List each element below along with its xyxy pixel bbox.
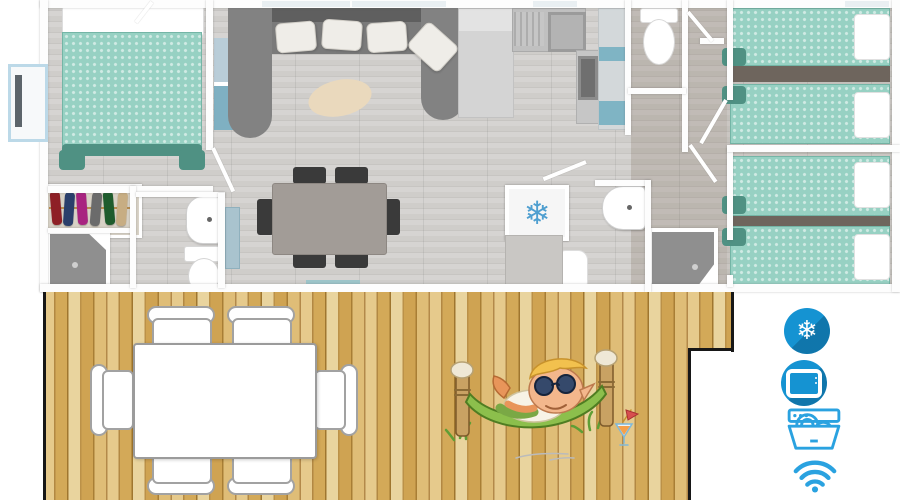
wall (206, 0, 213, 150)
fridge: ❄ (505, 185, 569, 241)
window (262, 1, 350, 7)
deck-edge (731, 292, 734, 352)
window-panel (15, 75, 22, 127)
shower (648, 228, 718, 290)
snowflake-icon: ❄ (796, 318, 818, 344)
faucet (627, 205, 632, 210)
deck-edge (688, 348, 734, 351)
washbasin (186, 196, 222, 244)
shower (46, 230, 110, 288)
cabinet-accent (599, 101, 628, 125)
window (533, 1, 577, 7)
sofa-arm-left (228, 8, 272, 138)
amenities-panel: ❄ (780, 304, 840, 496)
wall (136, 192, 225, 197)
wall (625, 0, 631, 135)
sofa-cushion (275, 20, 317, 53)
wall (727, 0, 733, 100)
dining-table (272, 183, 387, 255)
wall (645, 180, 651, 292)
wall (595, 180, 651, 186)
faucet (207, 217, 212, 222)
mascot-illustration (430, 346, 642, 480)
fridge-snowflake-icon: ❄ (524, 197, 551, 229)
wall (727, 275, 733, 287)
wall (130, 186, 136, 288)
terrace-table (133, 343, 317, 459)
toilet (638, 8, 678, 66)
dining-chair (335, 167, 368, 184)
cabinet-accent (599, 47, 628, 61)
wall (40, 284, 900, 292)
bedside-shelf (730, 66, 890, 82)
wall (48, 228, 135, 233)
window (845, 1, 889, 7)
bed-pillow (854, 92, 890, 138)
sofa-cushion (366, 21, 408, 54)
toilet-bowl (643, 19, 675, 65)
deck-edge (43, 292, 46, 500)
bed-foot-tab (59, 150, 85, 170)
wall (40, 0, 900, 8)
dishwasher-icon (786, 408, 842, 452)
window (352, 1, 446, 7)
bed-cover (62, 32, 202, 152)
dining-chair (293, 167, 326, 184)
kitchen-low-cabinet (505, 235, 563, 287)
floor-plan-page: ❄ (0, 0, 900, 500)
bed-foot-tab (722, 196, 746, 214)
deck-edge (688, 348, 691, 500)
hanging-clothes (90, 192, 103, 227)
wall (682, 0, 688, 152)
kitchen-sink (548, 12, 586, 52)
bed-foot-tab (179, 150, 205, 170)
shower-tray (652, 232, 714, 286)
shower-drain (72, 262, 78, 268)
hanging-clothes (63, 192, 75, 227)
wall (218, 193, 225, 288)
washbasin (602, 186, 646, 230)
bed-pillow (854, 162, 890, 208)
oven (578, 56, 598, 100)
wall (40, 0, 48, 292)
bed-pillow (854, 234, 890, 280)
tv-icon (786, 369, 822, 398)
wall (628, 88, 686, 94)
sink-drainer (514, 12, 544, 46)
hanging-clothes (116, 192, 128, 227)
bay-window (8, 64, 48, 142)
terrace-chair (102, 370, 134, 430)
wifi-icon (791, 456, 839, 494)
bed-pillow (854, 14, 890, 60)
terrace-chair (314, 370, 346, 430)
tv-badge (781, 360, 827, 406)
bathroom-cabinet (225, 207, 240, 269)
bed-foot-tab (722, 48, 746, 66)
hanging-clothes (103, 191, 116, 226)
hanging-clothes (76, 191, 88, 226)
kitchen-cabinet (458, 8, 514, 118)
wall (727, 145, 900, 152)
sofa-cushion (321, 19, 363, 52)
hanging-clothes (50, 191, 63, 226)
air-conditioning-badge: ❄ (784, 308, 830, 354)
wall (727, 148, 733, 240)
shower-tray (50, 234, 106, 284)
bed-foot-tab (722, 228, 746, 246)
shower-drain (692, 264, 698, 270)
double-bed (62, 6, 202, 166)
